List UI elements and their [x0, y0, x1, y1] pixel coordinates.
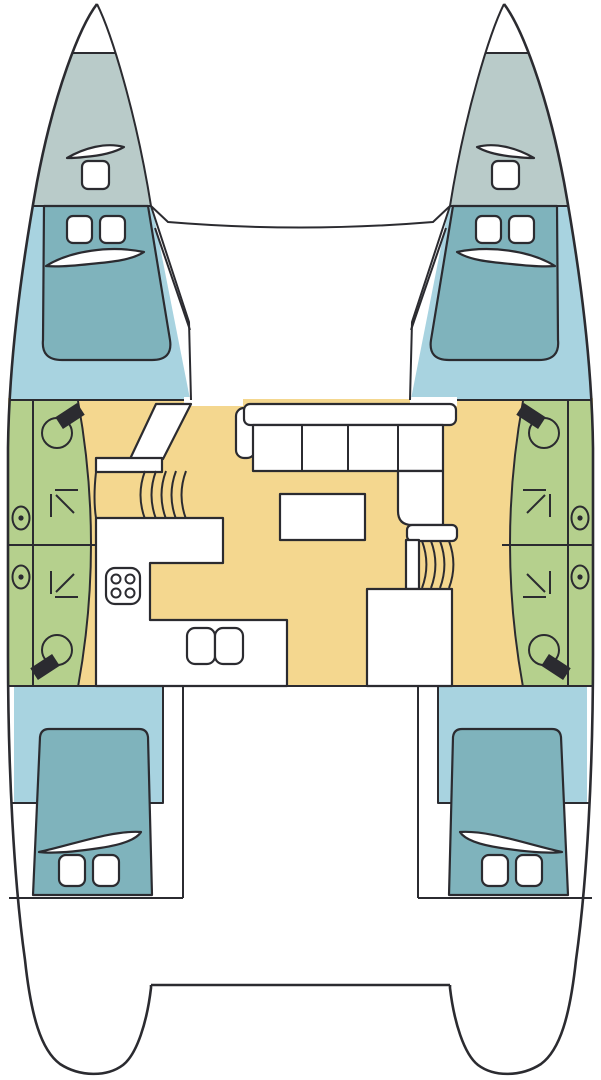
stair-landing-band: [96, 458, 162, 472]
berth-pillow: [59, 855, 85, 886]
sink: [187, 628, 215, 664]
sofa-backrest: [244, 404, 456, 425]
sofa-end-cap: [407, 525, 457, 541]
sofa-corner-seat: [398, 471, 443, 525]
stove-icon: [106, 568, 140, 604]
berth-pillow: [100, 216, 125, 243]
sink: [215, 628, 243, 664]
nav-station-module: [367, 589, 452, 686]
berth-pillow: [93, 855, 119, 886]
catamaran-deck-plan: [0, 0, 601, 1080]
berth-pillow: [67, 216, 92, 243]
catamaran-layout-page: [0, 0, 601, 1080]
saloon-table: [280, 494, 365, 540]
trampoline-foredeck: [152, 206, 449, 399]
saloon-front-deck: [184, 397, 243, 406]
deck-hatch-icon: [82, 161, 109, 189]
stair-side: [406, 540, 419, 589]
